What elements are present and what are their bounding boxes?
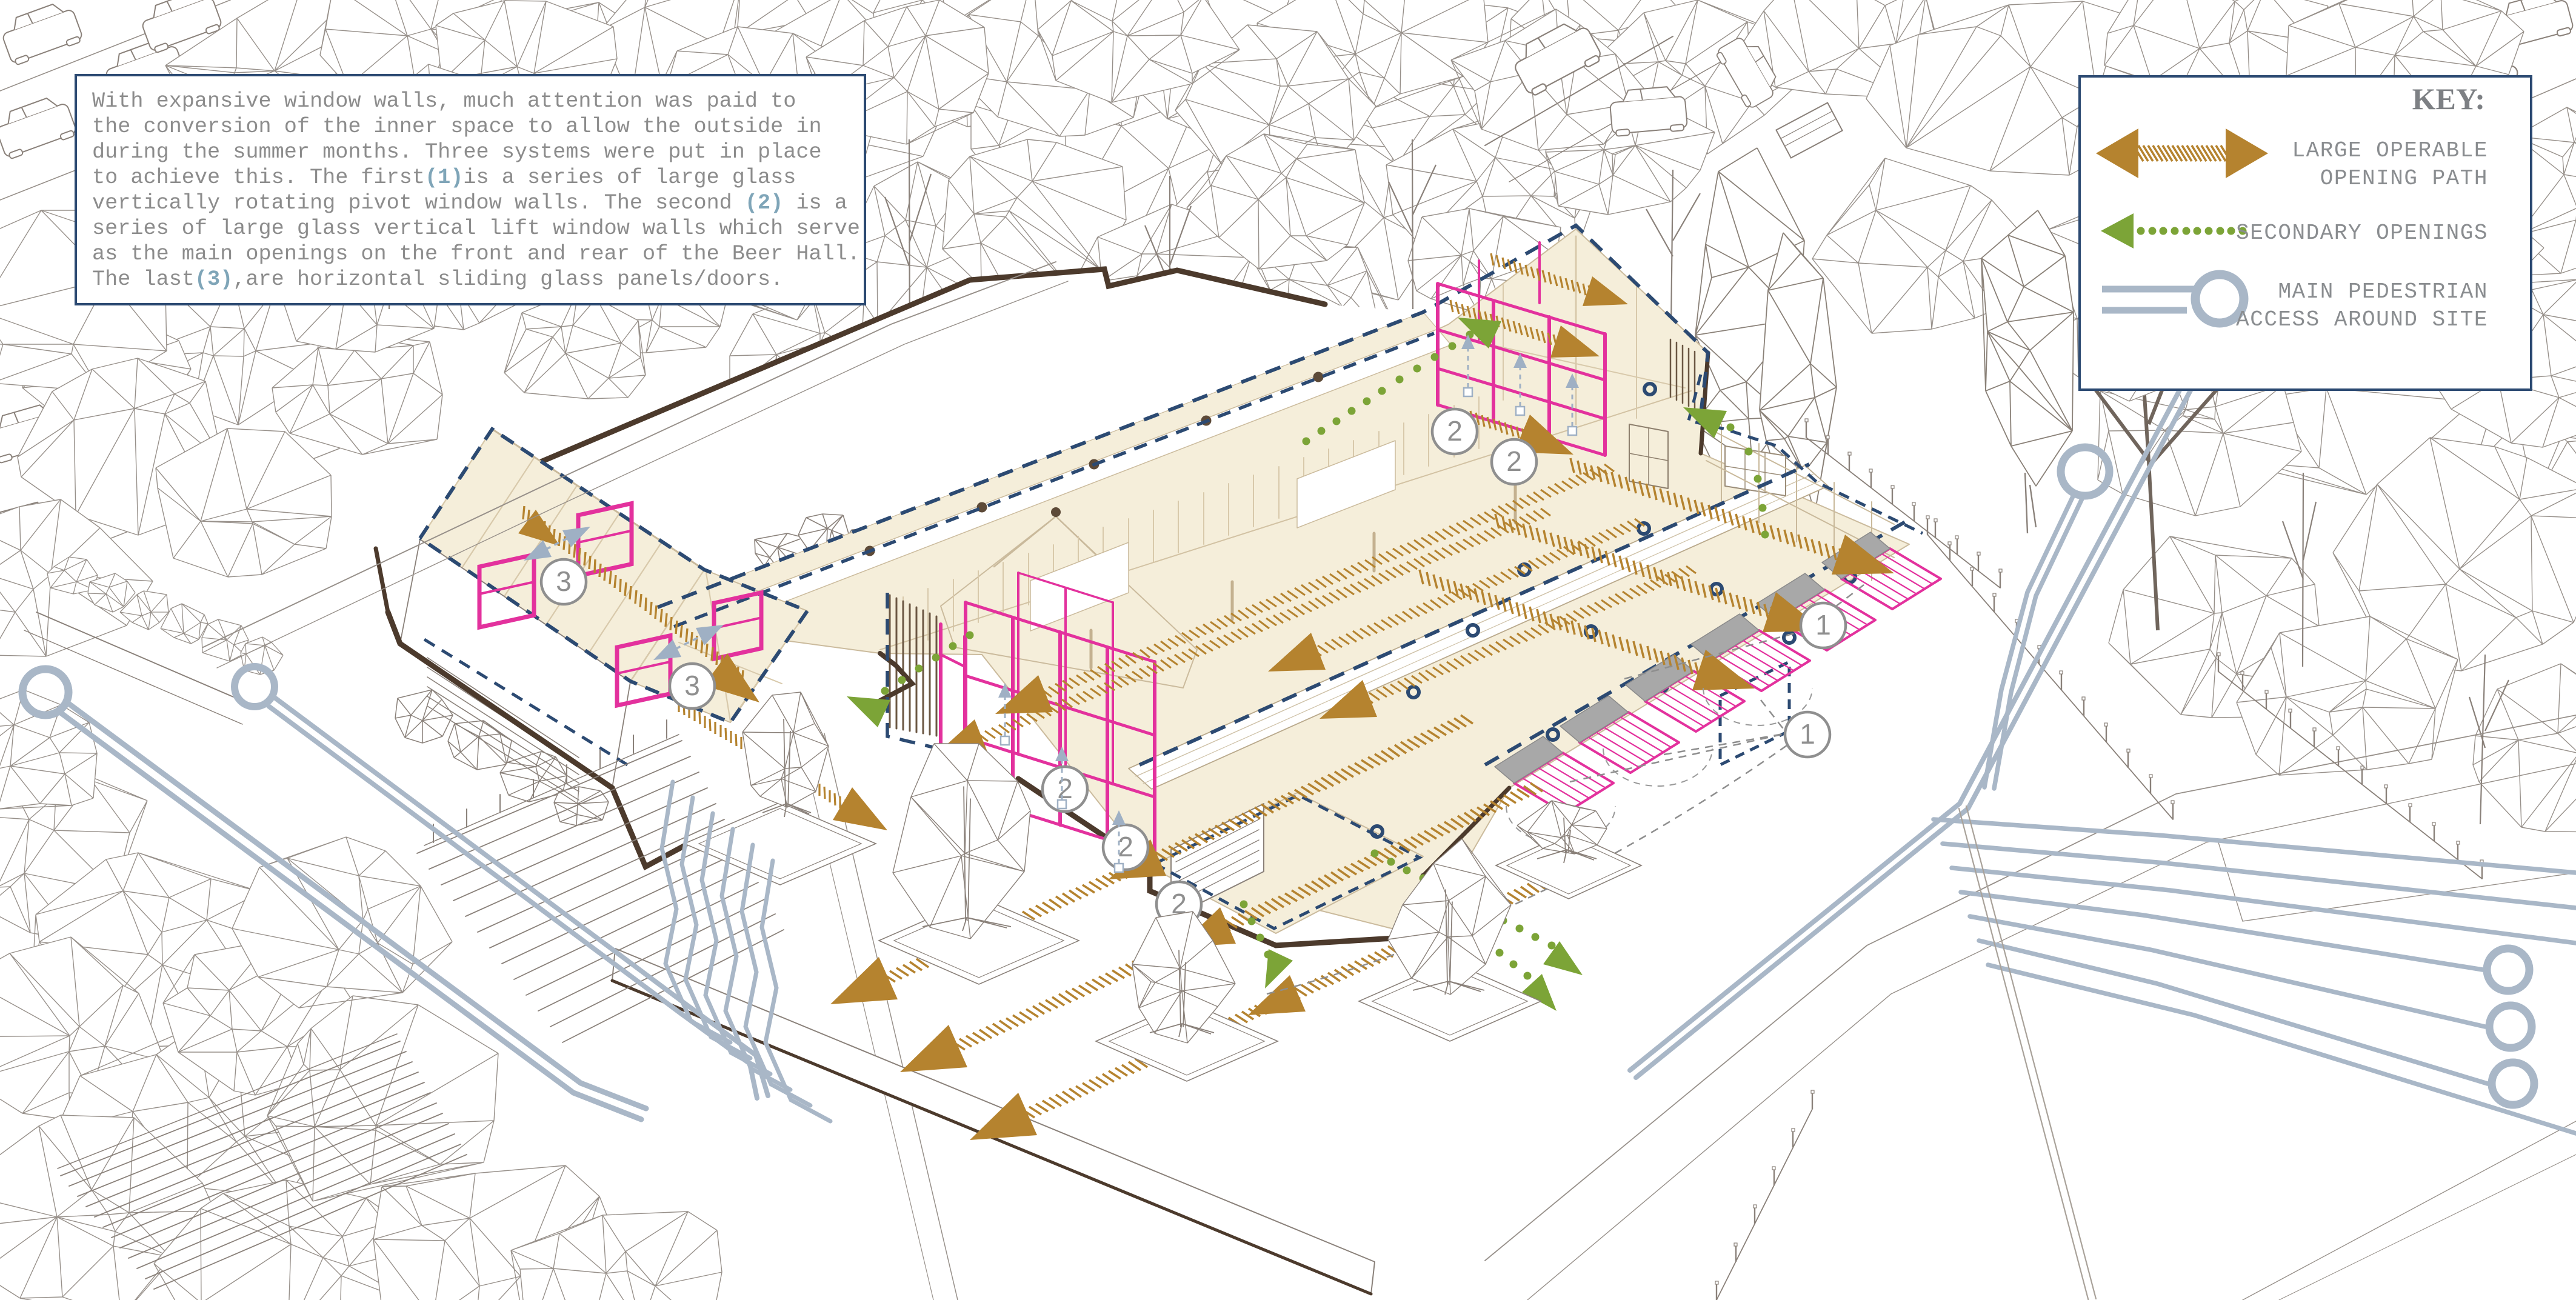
svg-text:1: 1 bbox=[1800, 718, 1815, 750]
svg-text:to achieve this. The first(1)i: to achieve this. The first(1)is a series… bbox=[92, 165, 796, 190]
svg-text:1: 1 bbox=[1815, 609, 1831, 641]
svg-text:OPENING PATH: OPENING PATH bbox=[2320, 166, 2488, 191]
svg-text:vertically rotating pivot wind: vertically rotating pivot window walls. … bbox=[92, 191, 847, 215]
svg-text:SECONDARY OPENINGS: SECONDARY OPENINGS bbox=[2236, 221, 2488, 245]
svg-text:KEY:: KEY: bbox=[2412, 82, 2485, 116]
svg-text:ACCESS AROUND SITE: ACCESS AROUND SITE bbox=[2236, 307, 2488, 332]
svg-text:3: 3 bbox=[684, 670, 700, 701]
svg-text:2: 2 bbox=[1118, 831, 1133, 862]
svg-text:series of large glass vertical: series of large glass vertical lift wind… bbox=[92, 216, 860, 241]
svg-text:The last(3),are horizontal sli: The last(3),are horizontal sliding glass… bbox=[92, 267, 783, 292]
svg-text:2: 2 bbox=[1506, 445, 1522, 477]
svg-text:MAIN PEDESTRIAN: MAIN PEDESTRIAN bbox=[2278, 279, 2488, 304]
svg-text:as the main openings on the fr: as the main openings on the front and re… bbox=[92, 242, 860, 266]
svg-text:2: 2 bbox=[1447, 415, 1463, 447]
svg-text:With expansive window walls, m: With expansive window walls, much attent… bbox=[92, 89, 796, 113]
svg-text:during the summer months. Thre: during the summer months. Three systems … bbox=[92, 140, 822, 164]
svg-text:the conversion of the inner sp: the conversion of the inner space to all… bbox=[92, 115, 822, 139]
svg-text:LARGE OPERABLE: LARGE OPERABLE bbox=[2292, 138, 2488, 163]
svg-text:3: 3 bbox=[556, 565, 572, 597]
